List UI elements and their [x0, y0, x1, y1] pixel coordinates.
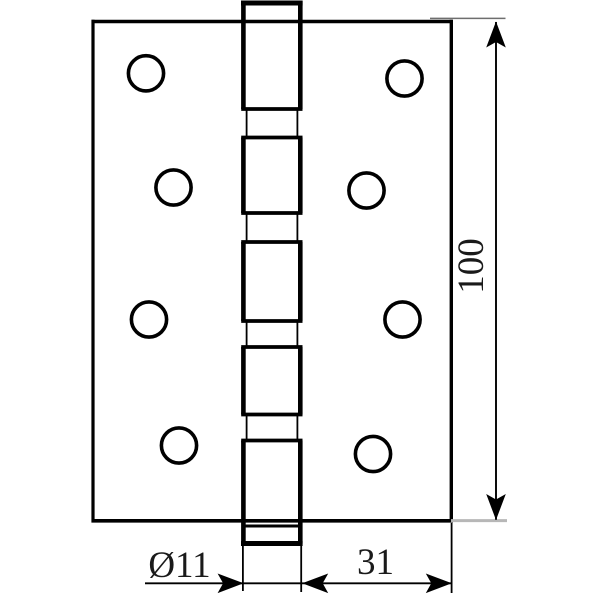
svg-text:100: 100 — [451, 238, 492, 294]
svg-text:Ø11: Ø11 — [148, 545, 210, 586]
svg-text:31: 31 — [357, 542, 394, 583]
